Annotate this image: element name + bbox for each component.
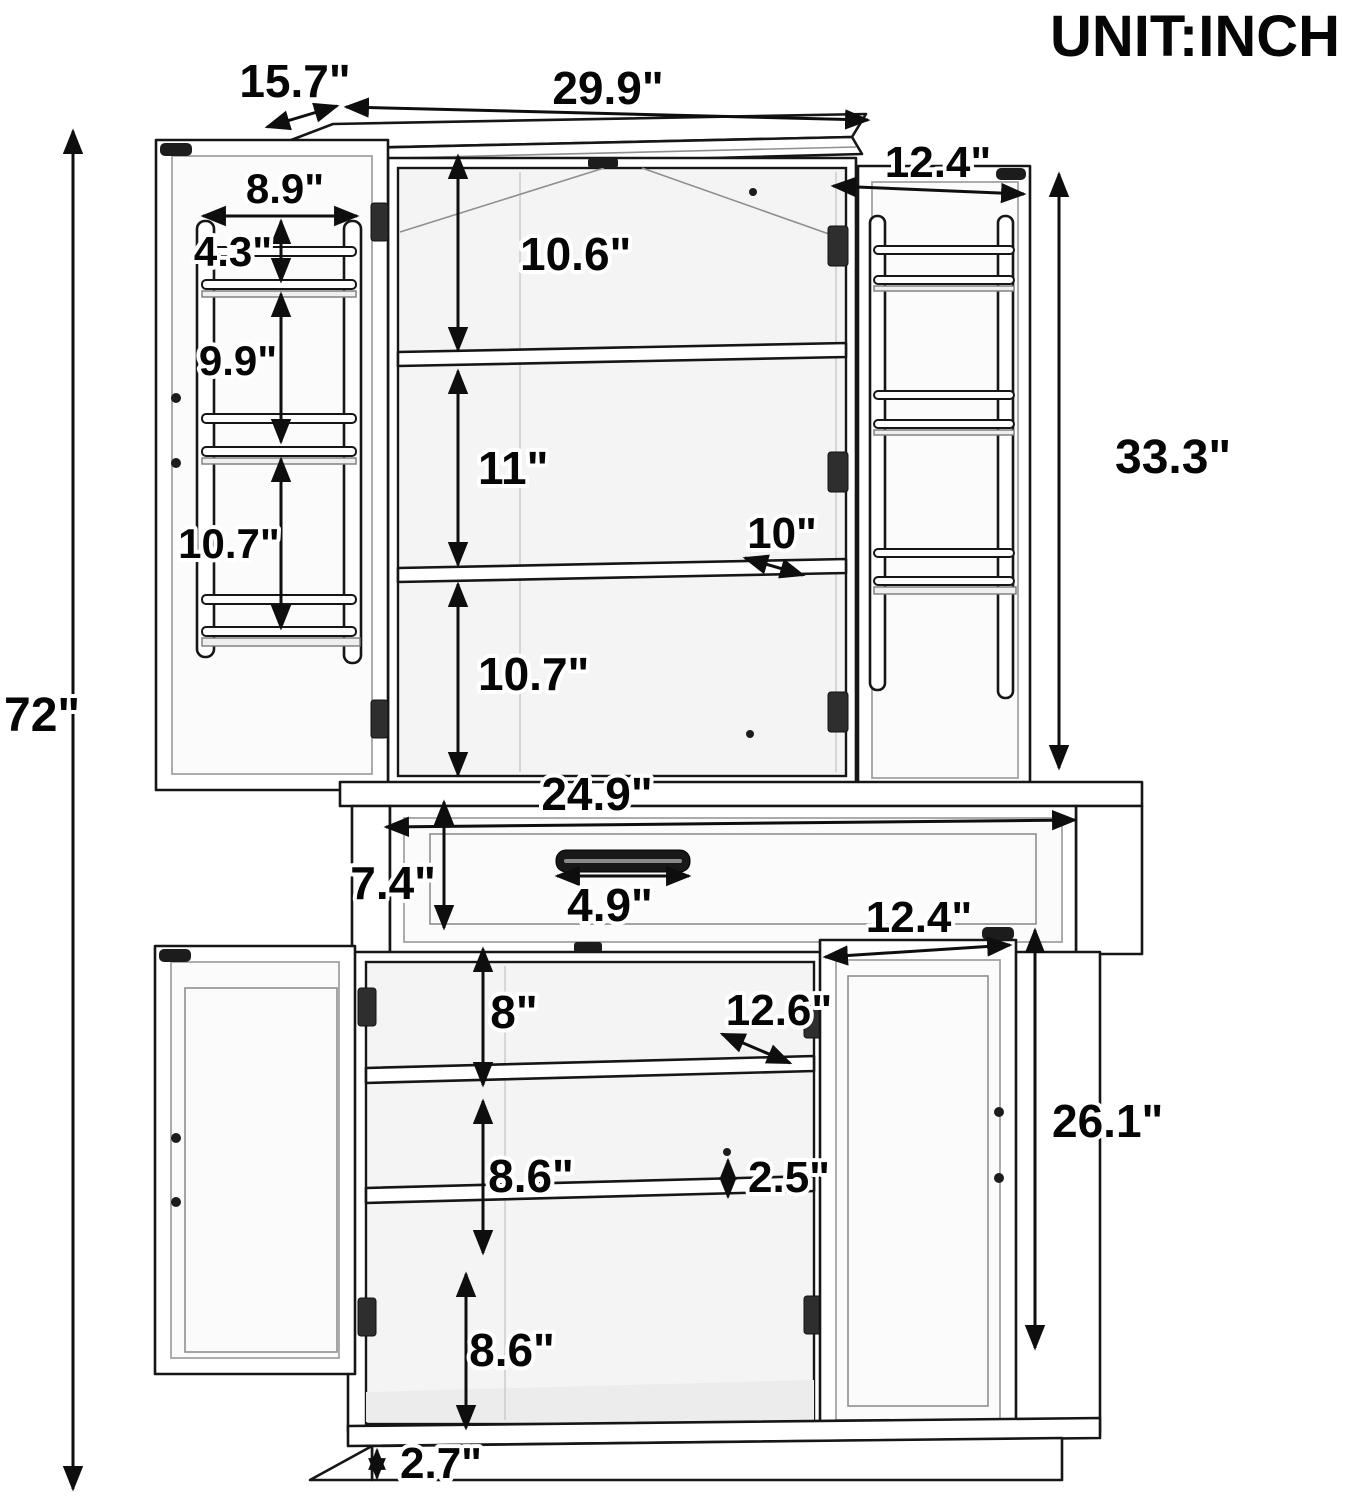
hinge (358, 988, 376, 1026)
dim-upper-middle-section-label: 11" (478, 442, 548, 494)
hinge (358, 1298, 376, 1336)
dim-top-depth-label: 15.7" (239, 55, 350, 107)
shelf-pin-hole (749, 188, 757, 196)
drawer-handle (556, 850, 690, 872)
dim-left-rack-top-label: 4.3" (194, 228, 272, 275)
screw (171, 393, 181, 403)
shelf-pin-hole (746, 730, 754, 738)
unit-label: UNIT:INCH (1050, 4, 1340, 69)
hinge (828, 452, 848, 492)
cabinet-dimension-diagram: UNIT:INCH 72" 15.7" 29.9" 12.4" 8.9" 4.3… (0, 0, 1351, 1500)
dim-left-rack-middle-label: 9.9" (199, 337, 277, 384)
dim-right-door-height-label: 33.3" (1115, 431, 1231, 484)
lower-right-door (820, 927, 1016, 1436)
dim-lower-top-section-label: 8" (490, 986, 537, 1038)
latch (996, 168, 1026, 180)
dim-upper-shelf-depth-label: 10" (747, 509, 817, 558)
dim-handle-width-label: 4.9" (567, 879, 653, 931)
latch (160, 143, 192, 156)
latch (982, 927, 1014, 940)
dim-lower-door-width-label: 12.4" (866, 893, 973, 942)
mid-counter-board (340, 782, 1142, 806)
dim-upper-door-width-label: 12.4" (885, 138, 992, 187)
dim-top-width-label: 29.9" (552, 62, 663, 114)
lower-left-door (155, 946, 355, 1374)
dim-lower-door-height-label: 26.1" (1052, 1095, 1163, 1147)
hinge (828, 692, 848, 732)
screw (994, 1107, 1004, 1117)
hinge (371, 203, 388, 241)
dim-upper-top-section-label: 10.6" (520, 228, 631, 280)
dim-lower-middle-section-label: 8.6" (488, 1150, 574, 1202)
dim-top-depth-arrow (267, 106, 337, 127)
dim-overall-height-label: 72" (4, 689, 80, 742)
screw (171, 1133, 181, 1143)
dim-lower-shelf-depth-label: 12.6" (726, 986, 833, 1035)
screw (171, 1197, 181, 1207)
dim-drawer-height-label: 7.4" (350, 857, 436, 909)
dim-shelf-gap-label: 2.5" (748, 1153, 830, 1202)
dim-left-rack-width-label: 8.9" (246, 165, 324, 212)
latch (159, 949, 191, 962)
door-catch (588, 158, 618, 168)
dim-base-height-label: 2.7" (400, 1439, 482, 1488)
dim-left-rack-bottom-label: 10.7" (178, 520, 280, 567)
diagram-canvas: UNIT:INCH 72" 15.7" 29.9" 12.4" 8.9" 4.3… (0, 0, 1351, 1500)
screw (994, 1173, 1004, 1183)
hinge (371, 700, 388, 738)
dim-lower-bottom-section-label: 8.6" (469, 1324, 555, 1376)
upper-right-door (828, 166, 1030, 794)
shelf-pin-hole (723, 1148, 731, 1156)
hinge (828, 226, 848, 266)
dim-upper-bottom-section-label: 10.7" (478, 648, 589, 700)
screw (171, 458, 181, 468)
drawer-section (352, 806, 1142, 954)
dim-drawer-width-label: 24.9" (541, 768, 652, 820)
